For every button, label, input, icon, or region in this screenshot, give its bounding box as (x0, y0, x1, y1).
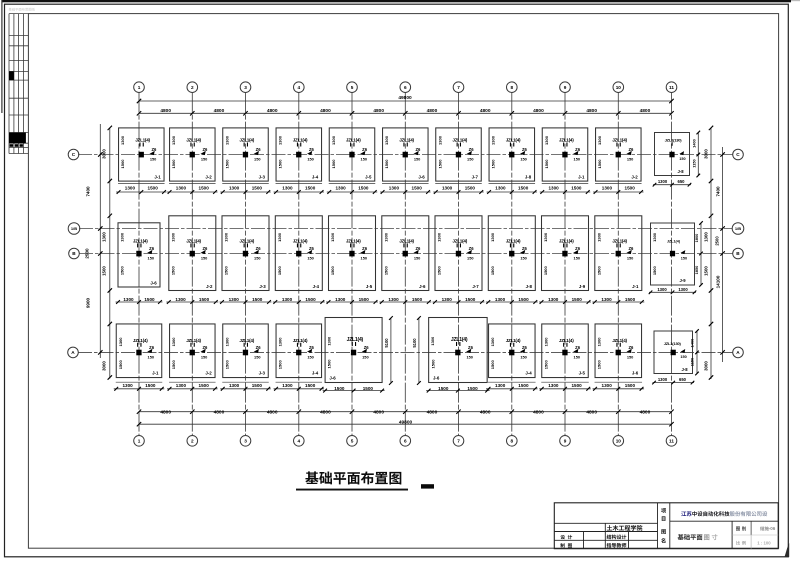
svg-text:1300: 1300 (388, 297, 399, 302)
svg-text:1: 1 (138, 438, 141, 443)
svg-text:2: 2 (191, 438, 194, 443)
svg-text:1300: 1300 (490, 232, 495, 242)
svg-text:1300: 1300 (602, 383, 613, 388)
svg-text:JZL1(4): JZL1(4) (506, 338, 521, 343)
svg-text:4800: 4800 (214, 409, 225, 415)
svg-text:JZL1(4): JZL1(4) (559, 137, 574, 142)
svg-text:1300: 1300 (224, 337, 229, 347)
svg-text:10: 10 (616, 438, 622, 443)
svg-text:JZL1(4): JZL1(4) (506, 238, 521, 243)
svg-text:JZL1(4): JZL1(4) (559, 238, 574, 243)
svg-text:650: 650 (679, 377, 687, 382)
svg-text:JZL1(4): JZL1(4) (293, 338, 308, 343)
svg-text:1500: 1500 (305, 297, 316, 302)
svg-text:4800: 4800 (533, 409, 544, 415)
svg-text:-06: -06 (769, 526, 776, 531)
svg-text:1500: 1500 (252, 297, 263, 302)
svg-text:J-3: J-3 (259, 284, 266, 289)
svg-text:1300: 1300 (229, 185, 240, 190)
svg-text:150: 150 (307, 157, 314, 162)
svg-text:J-1: J-1 (152, 370, 159, 375)
svg-text:1500: 1500 (437, 159, 442, 169)
svg-text:4800: 4800 (160, 409, 171, 415)
svg-text:2: 2 (191, 85, 194, 90)
svg-text:3000: 3000 (102, 149, 107, 159)
svg-text:1300: 1300 (490, 337, 495, 347)
svg-text:Z6: Z6 (522, 147, 528, 152)
svg-text:1500: 1500 (358, 185, 369, 190)
svg-text:150: 150 (520, 355, 527, 360)
svg-text:150: 150 (467, 256, 474, 261)
svg-text:1500: 1500 (625, 297, 636, 302)
svg-text:1300: 1300 (277, 232, 282, 242)
svg-text:JZL1(4): JZL1(4) (239, 238, 254, 243)
svg-text:1500: 1500 (383, 265, 388, 275)
svg-text:JZL1(4): JZL1(4) (612, 338, 627, 343)
svg-text:1500: 1500 (199, 297, 210, 302)
svg-text:1300: 1300 (102, 232, 107, 242)
svg-text:1500: 1500 (543, 360, 548, 370)
svg-text:5100: 5100 (412, 338, 417, 348)
svg-text:1150: 1150 (691, 159, 696, 167)
svg-text:650: 650 (678, 179, 686, 184)
svg-text:4800: 4800 (373, 108, 384, 114)
svg-text:7400: 7400 (716, 186, 721, 197)
svg-text:Z6: Z6 (309, 345, 315, 350)
svg-text:1500: 1500 (572, 297, 583, 302)
svg-text:1500: 1500 (491, 159, 496, 169)
svg-text:4800: 4800 (480, 108, 491, 114)
svg-text:1400: 1400 (691, 139, 696, 148)
svg-text:5100: 5100 (384, 338, 389, 348)
svg-text:1500: 1500 (330, 265, 335, 275)
svg-text:1500: 1500 (437, 265, 442, 275)
svg-text:Z6: Z6 (415, 246, 421, 251)
svg-text:150: 150 (201, 355, 208, 360)
svg-text:1300: 1300 (171, 337, 176, 347)
svg-text:1300: 1300 (336, 185, 347, 190)
svg-text:1400: 1400 (689, 339, 694, 348)
svg-text:4800: 4800 (267, 409, 278, 415)
svg-text:1500: 1500 (412, 185, 423, 190)
svg-text:150: 150 (681, 257, 687, 261)
svg-text:JZL1(4): JZL1(4) (399, 137, 414, 142)
svg-text:1300: 1300 (602, 185, 613, 190)
svg-text:1300: 1300 (652, 232, 657, 242)
svg-text:1300: 1300 (175, 297, 186, 302)
svg-text:4800: 4800 (267, 108, 278, 114)
svg-text:J-4: J-4 (312, 370, 319, 375)
svg-text:C: C (736, 152, 740, 157)
svg-text:Z6: Z6 (309, 246, 315, 251)
svg-text:150: 150 (307, 355, 314, 360)
svg-text:Z6: Z6 (468, 345, 474, 350)
svg-text:1500: 1500 (467, 386, 478, 391)
svg-text:1800: 1800 (694, 234, 699, 243)
svg-text:3: 3 (244, 85, 247, 90)
svg-text:JZL1(4): JZL1(4) (133, 238, 148, 243)
svg-text:150: 150 (627, 157, 634, 162)
svg-text:1300: 1300 (495, 185, 506, 190)
svg-text:J-5: J-5 (365, 174, 372, 179)
svg-text:1300: 1300 (442, 297, 453, 302)
svg-text:9: 9 (564, 85, 567, 90)
svg-text:J-7: J-7 (472, 284, 479, 289)
svg-text:1300: 1300 (549, 185, 560, 190)
svg-text:J-2: J-2 (206, 284, 213, 289)
svg-text:1300: 1300 (597, 135, 602, 145)
svg-text:1300: 1300 (543, 337, 548, 347)
svg-text:150: 150 (466, 355, 473, 360)
svg-text:1500: 1500 (305, 383, 316, 388)
svg-text:1500: 1500 (120, 265, 125, 275)
svg-text:1500: 1500 (571, 185, 582, 190)
svg-text:4800: 4800 (427, 108, 438, 114)
svg-text:49800: 49800 (399, 420, 413, 426)
svg-text:1500: 1500 (144, 297, 155, 302)
svg-text:Z6: Z6 (522, 345, 528, 350)
svg-text:4800: 4800 (320, 409, 331, 415)
svg-text:150: 150 (679, 157, 685, 161)
svg-text:2500: 2500 (715, 236, 720, 246)
svg-text:Z6: Z6 (151, 147, 157, 152)
svg-text:J-7: J-7 (472, 174, 479, 179)
svg-text:150: 150 (361, 157, 368, 162)
svg-text:Z6: Z6 (309, 147, 315, 152)
svg-text:1300: 1300 (282, 297, 293, 302)
svg-text:150: 150 (362, 355, 369, 360)
svg-text:1300: 1300 (229, 297, 240, 302)
svg-text:JZL1(4): JZL1(4) (186, 338, 201, 343)
svg-text:1300: 1300 (657, 287, 667, 292)
svg-text:1850: 1850 (694, 266, 699, 275)
svg-text:J-5: J-5 (579, 370, 586, 375)
svg-text:1300: 1300 (335, 297, 346, 302)
svg-text:1300: 1300 (601, 297, 612, 302)
svg-text:150: 150 (574, 256, 581, 261)
svg-text:2500: 2500 (85, 248, 90, 259)
svg-text:1/B: 1/B (735, 226, 741, 231)
svg-text:1500: 1500 (572, 383, 583, 388)
svg-text:JZL1(4): JZL1(4) (239, 338, 254, 343)
svg-text:1300: 1300 (229, 383, 240, 388)
svg-text:150: 150 (627, 355, 634, 360)
svg-text:14100: 14100 (716, 275, 721, 288)
svg-text:J-2: J-2 (205, 174, 212, 179)
svg-text:J-1: J-1 (154, 174, 161, 179)
svg-text:1300: 1300 (548, 297, 559, 302)
svg-text:1500: 1500 (438, 386, 449, 391)
svg-text:Z6: Z6 (364, 345, 370, 350)
svg-text:150: 150 (307, 256, 314, 261)
svg-text:1500: 1500 (148, 185, 159, 190)
svg-text:1500: 1500 (543, 265, 548, 275)
svg-text:J-2: J-2 (631, 174, 638, 179)
svg-text:1500: 1500 (199, 185, 210, 190)
svg-text:1500: 1500 (305, 185, 316, 190)
svg-text:4800: 4800 (427, 409, 438, 415)
svg-text:1500: 1500 (359, 297, 370, 302)
svg-text:J-6: J-6 (433, 375, 440, 380)
svg-text:1500: 1500 (171, 159, 176, 169)
svg-text:1300: 1300 (170, 232, 175, 242)
svg-text:1500: 1500 (145, 383, 156, 388)
svg-text:J-9: J-9 (579, 284, 586, 289)
svg-text:1300: 1300 (495, 383, 506, 388)
svg-text:1300: 1300 (278, 135, 283, 145)
svg-text:1 : 100: 1 : 100 (757, 541, 771, 546)
svg-text:3000: 3000 (102, 361, 107, 371)
svg-text:J-2: J-2 (205, 370, 212, 375)
svg-text:Z6: Z6 (202, 246, 208, 251)
svg-text:150: 150 (201, 157, 208, 162)
svg-text:1300: 1300 (548, 383, 559, 388)
svg-text:1500: 1500 (224, 265, 229, 275)
svg-text:J-8: J-8 (526, 284, 533, 289)
svg-text:4800: 4800 (320, 108, 331, 114)
svg-text:7400: 7400 (86, 186, 91, 197)
svg-text:1500: 1500 (704, 266, 709, 276)
svg-text:JZL1(4): JZL1(4) (667, 239, 681, 243)
svg-text:Z6: Z6 (628, 345, 634, 350)
svg-text:Z6: Z6 (469, 246, 475, 251)
svg-text:1500: 1500 (102, 266, 107, 276)
svg-text:B: B (736, 251, 740, 256)
svg-text:JZL1(4): JZL1(4) (506, 137, 521, 142)
svg-text:JZL1(4): JZL1(4) (135, 137, 150, 142)
svg-text:J-1: J-1 (578, 174, 585, 179)
svg-text:1300: 1300 (120, 135, 125, 145)
svg-text:JZL1(4): JZL1(4) (186, 137, 201, 142)
svg-text:1300: 1300 (430, 336, 435, 346)
svg-text:1300: 1300 (389, 185, 400, 190)
svg-text:1500: 1500 (331, 159, 336, 169)
svg-text:1500: 1500 (224, 360, 229, 370)
svg-text:1500: 1500 (363, 386, 374, 391)
svg-text:1300: 1300 (331, 135, 336, 145)
svg-text:10: 10 (616, 85, 622, 90)
svg-text:1500: 1500 (465, 185, 476, 190)
svg-text:Z6: Z6 (256, 147, 262, 152)
svg-text:J-1: J-1 (632, 284, 639, 289)
svg-text:1300: 1300 (282, 383, 293, 388)
svg-text:Z6: Z6 (362, 147, 368, 152)
svg-text:Z6: Z6 (149, 246, 155, 251)
svg-text:JZL1(4): JZL1(4) (293, 137, 308, 142)
svg-text:1300: 1300 (224, 232, 229, 242)
svg-text:Z6: Z6 (575, 147, 581, 152)
svg-text:Z6: Z6 (202, 345, 208, 350)
svg-text:4800: 4800 (214, 108, 225, 114)
svg-text:150: 150 (254, 256, 261, 261)
svg-text:1/B: 1/B (71, 226, 77, 231)
svg-text:1500: 1500 (277, 265, 282, 275)
svg-text:JZL1(4): JZL1(4) (612, 137, 627, 142)
svg-text:150: 150 (150, 157, 157, 162)
svg-text:1300: 1300 (678, 287, 688, 292)
svg-text:11: 11 (669, 438, 674, 443)
svg-text:J-5: J-5 (366, 284, 373, 289)
svg-text:1300: 1300 (597, 337, 602, 347)
svg-text:150: 150 (574, 355, 581, 360)
svg-text:150: 150 (627, 256, 634, 261)
svg-text:1300: 1300 (282, 185, 293, 190)
svg-text:1500: 1500 (518, 185, 529, 190)
svg-text:1300: 1300 (437, 232, 442, 242)
svg-text:J-4: J-4 (525, 370, 532, 375)
svg-text:4800: 4800 (586, 108, 597, 114)
svg-text:J-4: J-4 (313, 284, 320, 289)
svg-text:4800: 4800 (533, 108, 544, 114)
svg-text:1300: 1300 (596, 232, 601, 242)
svg-text:Z6: Z6 (202, 147, 208, 152)
svg-text:150: 150 (254, 355, 261, 360)
svg-text:1500: 1500 (278, 159, 283, 169)
svg-text:8: 8 (510, 85, 513, 90)
svg-text:1300: 1300 (330, 232, 335, 242)
svg-text:3000: 3000 (704, 361, 709, 371)
svg-text:1500: 1500 (199, 383, 210, 388)
svg-text:Z6: Z6 (469, 147, 475, 152)
svg-text:1300: 1300 (224, 135, 229, 145)
svg-text:150: 150 (148, 355, 155, 360)
svg-text:1300: 1300 (658, 377, 668, 382)
svg-text:1300: 1300 (118, 337, 123, 347)
svg-text:1300: 1300 (442, 185, 453, 190)
svg-text:Z6: Z6 (415, 147, 421, 152)
svg-text:1500: 1500 (334, 386, 345, 391)
svg-text:J-6: J-6 (329, 375, 336, 380)
svg-text:J-6: J-6 (419, 284, 426, 289)
svg-text:1500: 1500 (544, 159, 549, 169)
svg-text:Z6: Z6 (628, 246, 634, 251)
svg-text:1500: 1500 (465, 297, 476, 302)
svg-text:1300: 1300 (278, 337, 283, 347)
svg-text:Z6: Z6 (256, 345, 262, 350)
svg-text:JZL1(4): JZL1(4) (452, 238, 467, 243)
svg-text:JZL1(4): JZL1(4) (293, 238, 308, 243)
svg-text:1500: 1500 (625, 383, 636, 388)
svg-text:JZL1(4): JZL1(4) (346, 137, 361, 142)
svg-text:5: 5 (351, 438, 354, 443)
svg-text:1500: 1500 (252, 383, 263, 388)
svg-text:1300: 1300 (327, 336, 332, 346)
svg-text:JZL1(4): JZL1(4) (133, 338, 148, 343)
svg-text:150: 150 (414, 256, 421, 261)
svg-text:11: 11 (669, 85, 674, 90)
svg-text:1300: 1300 (383, 232, 388, 242)
svg-text:150: 150 (414, 157, 421, 162)
svg-text:1500: 1500 (597, 159, 602, 169)
svg-text:JZL1(4): JZL1(4) (452, 137, 467, 142)
svg-text:JZL1(130): JZL1(130) (664, 341, 682, 346)
svg-text:1300: 1300 (704, 232, 709, 242)
svg-text:JZL1(4): JZL1(4) (612, 238, 627, 243)
svg-text:J-8: J-8 (677, 169, 684, 174)
svg-text:B: B (72, 251, 76, 256)
svg-text:4800: 4800 (480, 409, 491, 415)
svg-text:1300: 1300 (123, 383, 134, 388)
svg-text:JZL1(4): JZL1(4) (559, 338, 574, 343)
svg-text:J-3: J-3 (259, 370, 266, 375)
svg-text:4800: 4800 (640, 409, 651, 415)
svg-text:5: 5 (351, 85, 354, 90)
svg-text:4: 4 (297, 438, 300, 443)
svg-text:1500: 1500 (170, 265, 175, 275)
svg-text:1300: 1300 (176, 185, 187, 190)
svg-text:1500: 1500 (327, 359, 332, 369)
svg-text:9: 9 (564, 438, 567, 443)
svg-text:150: 150 (467, 157, 474, 162)
svg-text:J-4: J-4 (312, 174, 319, 179)
svg-text:1150: 1150 (689, 358, 694, 366)
svg-text:49800: 49800 (398, 95, 412, 101)
svg-text:J-8: J-8 (525, 174, 532, 179)
svg-text:J-6: J-6 (418, 174, 425, 179)
svg-text:1500: 1500 (384, 159, 389, 169)
svg-text:1500: 1500 (412, 297, 423, 302)
svg-text:Z6: Z6 (522, 246, 528, 251)
svg-text:1: 1 (138, 85, 141, 90)
svg-text:JZL1(130): JZL1(130) (665, 137, 683, 142)
svg-text:1300: 1300 (120, 232, 125, 242)
svg-text:Z6: Z6 (628, 147, 634, 152)
svg-text:JZL1(4): JZL1(4) (346, 238, 361, 243)
svg-text:6: 6 (404, 438, 407, 443)
svg-text:150: 150 (574, 157, 581, 162)
svg-text:4800: 4800 (373, 409, 384, 415)
svg-text:150: 150 (254, 157, 261, 162)
svg-text:1300: 1300 (491, 135, 496, 145)
svg-text:1500: 1500 (490, 265, 495, 275)
svg-text:Z6: Z6 (362, 246, 368, 251)
svg-text:7: 7 (457, 85, 460, 90)
svg-text:1500: 1500 (224, 159, 229, 169)
svg-text:1500: 1500 (597, 360, 602, 370)
svg-text:4800: 4800 (160, 108, 171, 114)
svg-text:Z6: Z6 (256, 246, 262, 251)
svg-text:1500: 1500 (625, 185, 636, 190)
svg-text:1500: 1500 (278, 360, 283, 370)
svg-text:Z6: Z6 (575, 345, 581, 350)
svg-text:1300: 1300 (125, 185, 136, 190)
svg-text:J-6: J-6 (150, 280, 157, 285)
svg-text:JZL1(4): JZL1(4) (399, 238, 414, 243)
svg-text:9900: 9900 (86, 297, 91, 308)
svg-text:1500: 1500 (596, 265, 601, 275)
svg-text:1500: 1500 (120, 159, 125, 169)
svg-text:150: 150 (361, 256, 368, 261)
svg-text:A: A (71, 350, 75, 355)
svg-text:150: 150 (148, 256, 155, 261)
svg-text:1500: 1500 (652, 265, 657, 275)
svg-text:1300: 1300 (544, 135, 549, 145)
svg-text:3: 3 (244, 438, 247, 443)
svg-text:J-8: J-8 (681, 367, 688, 372)
svg-text:1300: 1300 (543, 232, 548, 242)
svg-text:1500: 1500 (252, 185, 263, 190)
svg-text:3000: 3000 (704, 149, 709, 159)
svg-text:4: 4 (297, 85, 300, 90)
svg-text:A: A (736, 350, 740, 355)
svg-text:7: 7 (457, 438, 460, 443)
svg-text:1300: 1300 (495, 297, 506, 302)
svg-text:4800: 4800 (586, 409, 597, 415)
svg-text:1300: 1300 (123, 297, 134, 302)
svg-text:1300: 1300 (176, 383, 187, 388)
svg-text:4800: 4800 (640, 108, 651, 114)
svg-text:Z6: Z6 (149, 345, 155, 350)
